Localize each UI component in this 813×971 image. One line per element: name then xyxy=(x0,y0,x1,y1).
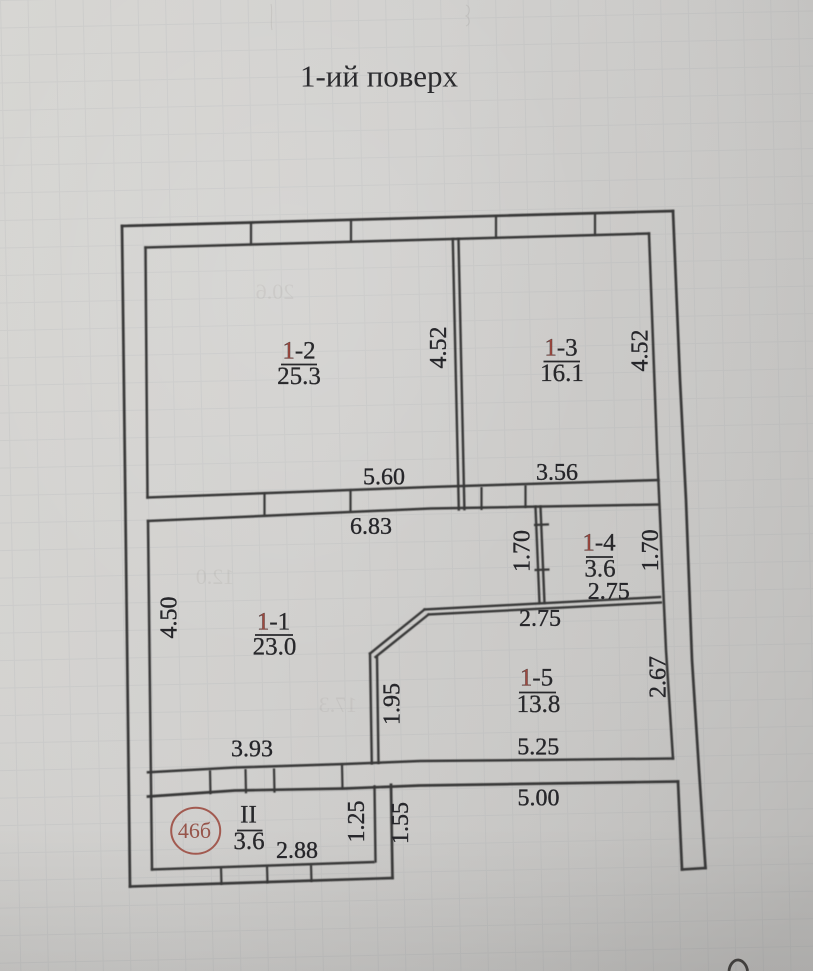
svg-text:6.83: 6.83 xyxy=(350,514,392,540)
svg-text:4.52: 4.52 xyxy=(426,327,452,369)
svg-text:3.6: 3.6 xyxy=(233,828,264,855)
svg-text:1.25: 1.25 xyxy=(344,801,370,843)
svg-text:12.0: 12.0 xyxy=(196,564,235,589)
svg-text:5.25: 5.25 xyxy=(517,735,559,761)
svg-text:1-1: 1-1 xyxy=(257,609,290,636)
svg-text:1.95: 1.95 xyxy=(379,683,405,725)
svg-text:1.70: 1.70 xyxy=(638,529,664,571)
svg-text:1-4: 1-4 xyxy=(582,530,616,557)
svg-text:5.60: 5.60 xyxy=(363,465,405,491)
svg-text:4.50: 4.50 xyxy=(156,597,182,639)
svg-text:3.93: 3.93 xyxy=(231,737,273,763)
svg-text:46б: 46б xyxy=(178,818,211,843)
svg-text:1-2: 1-2 xyxy=(282,338,315,365)
svg-text:16.1: 16.1 xyxy=(540,360,584,387)
svg-text:1-5: 1-5 xyxy=(520,665,553,692)
svg-text:1.70: 1.70 xyxy=(510,530,536,572)
svg-text:1.55: 1.55 xyxy=(388,802,414,844)
svg-text:2.75: 2.75 xyxy=(519,606,561,632)
svg-text:2.88: 2.88 xyxy=(276,838,318,864)
svg-text:1-ий поверх: 1-ий поверх xyxy=(300,59,459,94)
svg-text:2.75: 2.75 xyxy=(588,579,630,605)
svg-text:20.6: 20.6 xyxy=(256,279,295,304)
svg-text:3.56: 3.56 xyxy=(536,460,578,486)
svg-text:13.8: 13.8 xyxy=(517,691,561,718)
svg-text:17.3: 17.3 xyxy=(319,692,358,717)
svg-text:25.3: 25.3 xyxy=(277,363,321,390)
svg-text:4.52: 4.52 xyxy=(627,330,653,372)
svg-text:1-3: 1-3 xyxy=(544,335,577,362)
svg-text:II: II xyxy=(240,802,257,829)
svg-text:5.00: 5.00 xyxy=(518,785,560,811)
svg-text:23.0: 23.0 xyxy=(253,633,297,660)
svg-text:2.67: 2.67 xyxy=(645,656,671,698)
